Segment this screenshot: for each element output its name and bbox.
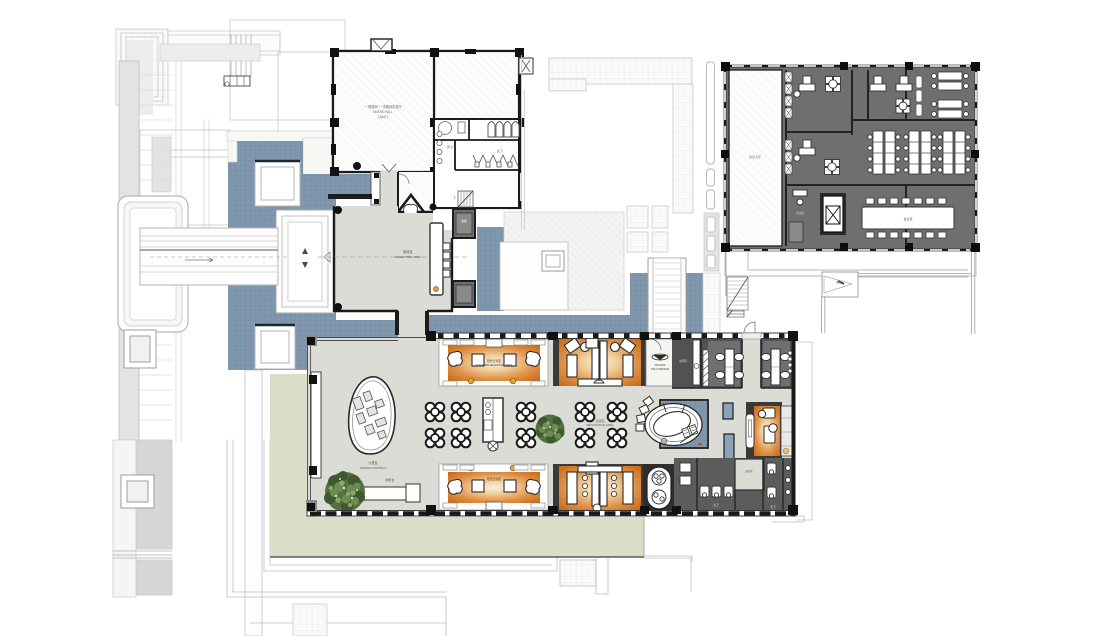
svg-text:阳光洽谈区: 阳光洽谈区 xyxy=(487,477,501,481)
svg-text:MOVIE HALL: MOVIE HALL xyxy=(373,110,392,114)
svg-text:PRANCE: PRANCE xyxy=(655,363,666,367)
svg-text:会议室: 会议室 xyxy=(903,216,912,221)
svg-text:阳光洽谈区: 阳光洽谈区 xyxy=(487,359,501,363)
svg-text:沙盘区: 沙盘区 xyxy=(368,460,378,465)
svg-text:THE CORRIDOR: THE CORRIDOR xyxy=(651,368,670,371)
svg-text:男卫: 男卫 xyxy=(447,144,453,149)
svg-text:共享大厅: 共享大厅 xyxy=(749,154,761,159)
svg-text:茶水间: 茶水间 xyxy=(796,211,804,215)
svg-text:SHAPAN DISTRICT: SHAPAN DISTRICT xyxy=(360,466,387,470)
svg-text:坡道: 坡道 xyxy=(836,280,841,284)
svg-text:水吧间: 水吧间 xyxy=(679,359,687,363)
svg-text:接待区: 接待区 xyxy=(403,249,413,254)
svg-text:NEGOTIATION AREA: NEGOTIATION AREA xyxy=(586,423,613,427)
svg-text:上: 上 xyxy=(453,194,456,199)
svg-text:RECEPTION AREA: RECEPTION AREA xyxy=(395,255,421,259)
svg-text:女卫: 女卫 xyxy=(713,503,719,507)
svg-text:男卫: 男卫 xyxy=(770,505,776,509)
svg-text:女卫: 女卫 xyxy=(497,148,503,153)
svg-text:客梯: 客梯 xyxy=(461,219,467,223)
svg-text:服务台: 服务台 xyxy=(385,477,394,482)
svg-text:一 楼梯间 一 多媒体影音厅: 一 楼梯间 一 多媒体影音厅 xyxy=(364,104,403,109)
svg-text:SUNSHINE RECEPTION AREA: SUNSHINE RECEPTION AREA xyxy=(476,363,513,367)
svg-text:( 84㎡ ): ( 84㎡ ) xyxy=(378,114,389,119)
svg-text:更衣室: 更衣室 xyxy=(745,469,753,473)
